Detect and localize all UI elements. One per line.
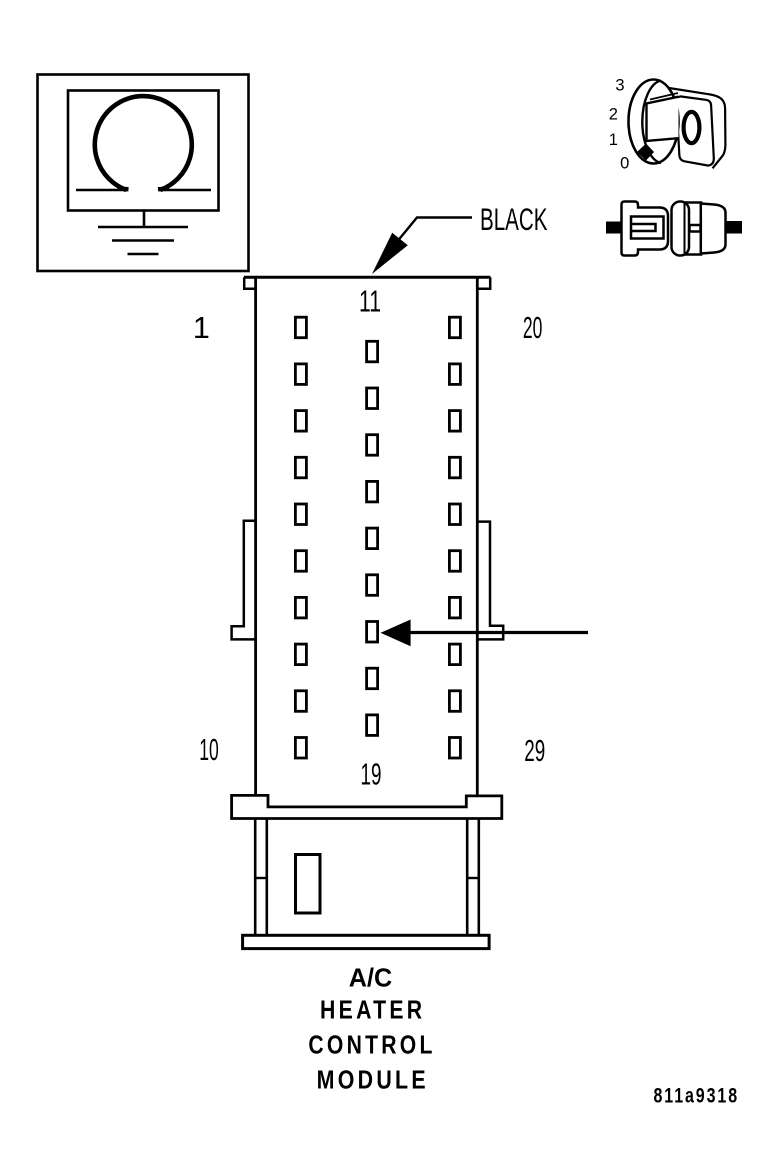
svg-text:10: 10 <box>199 733 219 767</box>
svg-text:2: 2 <box>609 105 618 123</box>
svg-text:20: 20 <box>523 311 543 345</box>
svg-text:29: 29 <box>524 734 545 768</box>
svg-text:A/C: A/C <box>349 963 393 993</box>
svg-text:MODULE: MODULE <box>317 1065 429 1095</box>
svg-text:1: 1 <box>193 311 210 345</box>
svg-text:HEATER: HEATER <box>320 994 425 1024</box>
svg-text:BLACK: BLACK <box>480 201 548 237</box>
svg-text:811a9318: 811a9318 <box>654 1084 740 1107</box>
svg-text:0: 0 <box>620 155 629 173</box>
svg-text:3: 3 <box>615 77 624 95</box>
svg-text:1: 1 <box>609 131 618 149</box>
svg-text:19: 19 <box>361 757 382 791</box>
svg-text:CONTROL: CONTROL <box>308 1029 435 1059</box>
svg-text:11: 11 <box>359 285 381 319</box>
